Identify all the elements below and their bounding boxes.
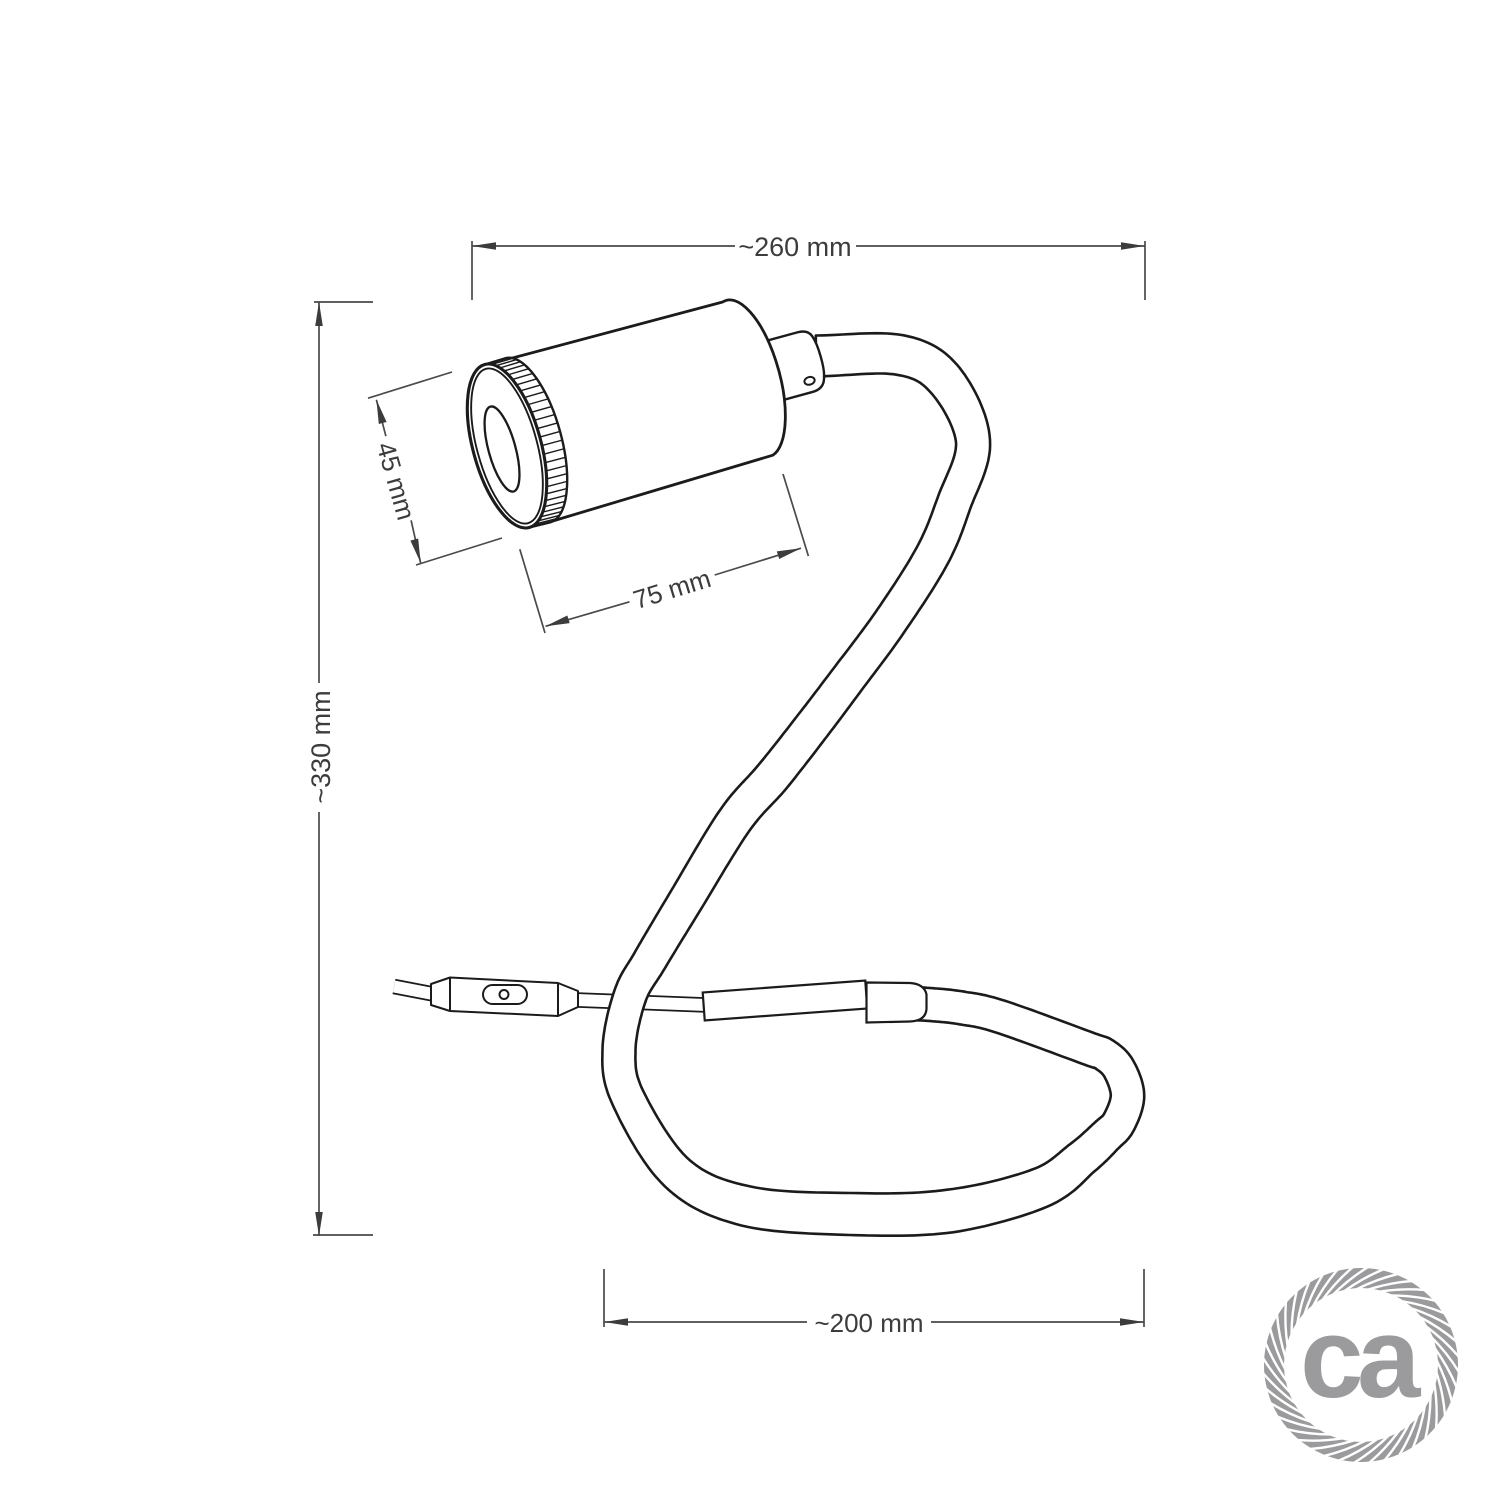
svg-text:ca: ca	[1300, 1295, 1422, 1422]
svg-text:~330 mm: ~330 mm	[306, 690, 336, 803]
svg-text:~200 mm: ~200 mm	[814, 1308, 923, 1338]
svg-text:~260 mm: ~260 mm	[738, 232, 851, 262]
